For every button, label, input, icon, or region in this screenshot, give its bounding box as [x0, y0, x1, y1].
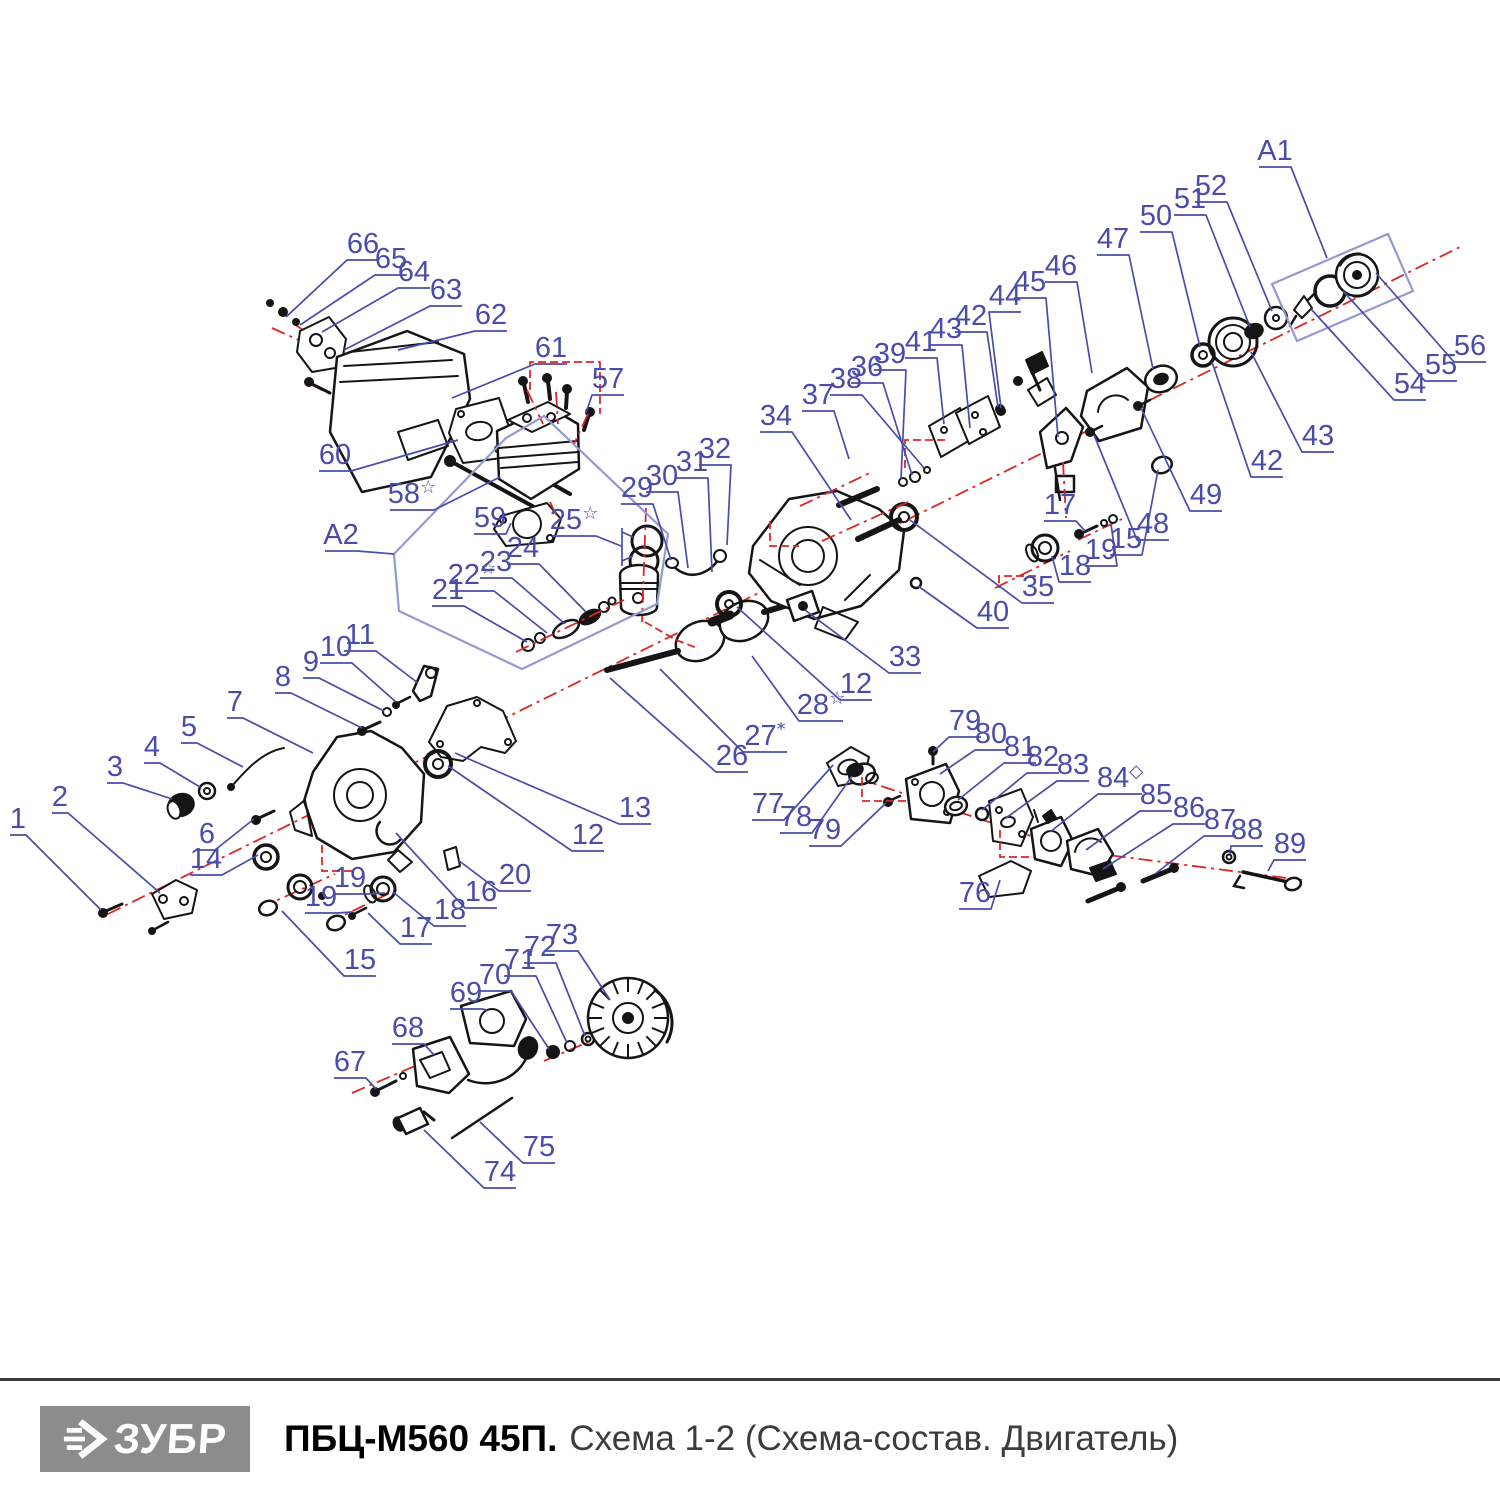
- leader-line-50: [1140, 232, 1200, 347]
- callout-17: 17: [1044, 489, 1076, 521]
- callout-42: 42: [1251, 445, 1283, 477]
- callout-40: 40: [977, 596, 1009, 628]
- leader-line-79: [933, 737, 981, 752]
- leader-line-1: [10, 835, 101, 910]
- leader-line-24: [507, 564, 586, 612]
- leader-line-69: [450, 1009, 487, 1010]
- callout-86: 86: [1173, 792, 1205, 824]
- callout-16: 16: [465, 876, 497, 908]
- callout-61: 61: [535, 332, 567, 364]
- callout-60: 60: [319, 439, 351, 471]
- callout-1: 1: [10, 803, 26, 835]
- callout-88: 88: [1231, 814, 1263, 846]
- callout-89: 89: [1274, 828, 1306, 860]
- zubr-logo: ЗУБР: [40, 1406, 250, 1472]
- callout-suffix-icon: ☆: [480, 558, 496, 579]
- callout-69: 69: [450, 977, 482, 1009]
- callout-17: 17: [400, 912, 432, 944]
- callout-63: 63: [430, 274, 462, 306]
- callout-62: 62: [475, 299, 507, 331]
- callout-2: 2: [52, 781, 68, 813]
- leader-line-9: [303, 678, 384, 711]
- callout-57: 57: [592, 363, 624, 395]
- callout-30: 30: [646, 460, 678, 492]
- leader-line-65: [300, 275, 407, 325]
- leader-line-11: [344, 651, 418, 683]
- callout-suffix-icon: ☆: [582, 503, 598, 524]
- callout-18: 18: [434, 894, 466, 926]
- leader-line-31: [676, 478, 712, 572]
- callout-74: 74: [484, 1156, 516, 1188]
- callout-33: 33: [889, 641, 921, 673]
- callout-34: 34: [760, 400, 792, 432]
- leader-line-37: [802, 411, 849, 459]
- callout-59: 59: [474, 502, 506, 534]
- callout-43: 43: [1302, 420, 1334, 452]
- leader-line-88: [1230, 846, 1263, 854]
- callout-27: 27*: [744, 719, 785, 752]
- callout-78: 78: [780, 801, 812, 833]
- callout-25: 25☆: [550, 503, 598, 536]
- leader-line-67: [334, 1078, 376, 1089]
- callout-58: 58☆: [388, 477, 436, 510]
- callout-suffix-icon: *: [777, 719, 786, 740]
- callout-19: 19: [305, 881, 337, 913]
- callout-8: 8: [275, 661, 291, 693]
- callout-18: 18: [1059, 550, 1091, 582]
- callout-75: 75: [523, 1131, 555, 1163]
- callout-12: 12: [572, 819, 604, 851]
- callout-4: 4: [144, 731, 160, 763]
- callout-9: 9: [303, 646, 319, 678]
- callout-47: 47: [1097, 223, 1129, 255]
- footer-divider: [0, 1378, 1500, 1381]
- callout-46: 46: [1045, 250, 1077, 282]
- callout-19: 19: [334, 862, 366, 894]
- callout-76: 76: [959, 877, 991, 909]
- zubr-arrow-icon: [62, 1416, 108, 1462]
- callout-80: 80: [975, 718, 1007, 750]
- leader-line-47: [1097, 255, 1153, 369]
- leader-line-10: [320, 663, 396, 702]
- callout-7: 7: [227, 686, 243, 718]
- callout-suffix-icon: ☆: [829, 688, 845, 709]
- leader-line-66: [286, 260, 379, 317]
- callout-83: 83: [1057, 749, 1089, 781]
- callout-52: 52: [1195, 170, 1227, 202]
- leader-line-89: [1268, 860, 1306, 871]
- leader-line-3: [107, 783, 172, 799]
- callout-45: 45: [1014, 266, 1046, 298]
- callout-A1: A1: [1257, 135, 1292, 167]
- callout-32: 32: [699, 433, 731, 465]
- callout-13: 13: [619, 792, 651, 824]
- callout-68: 68: [392, 1012, 424, 1044]
- callout-49: 49: [1190, 479, 1222, 511]
- leader-line-41: [905, 358, 944, 424]
- callout-35: 35: [1022, 571, 1054, 603]
- leader-line-8: [275, 693, 362, 728]
- leader-line-39: [874, 370, 906, 479]
- leader-line-5: [181, 743, 243, 767]
- callout-A2: A2: [323, 519, 358, 551]
- engine-parts: [99, 254, 1378, 1138]
- leader-line-A2: [325, 551, 394, 554]
- leader-line-21: [432, 606, 527, 642]
- callout-suffix-icon: ☆: [420, 477, 436, 498]
- leader-line-22: [450, 591, 547, 633]
- callout-14: 14: [190, 843, 222, 875]
- callout-11: 11: [345, 619, 375, 651]
- leader-line-4: [144, 763, 200, 787]
- leader-line-25: [552, 536, 621, 546]
- callout-26: 26: [716, 740, 748, 772]
- exploded-parts-diagram: 1234567891011141516171819192012136768697…: [0, 0, 1500, 1500]
- callout-85: 85: [1140, 779, 1172, 811]
- callout-3: 3: [107, 751, 123, 783]
- callout-54: 54: [1394, 368, 1426, 400]
- leader-line-38: [830, 395, 924, 468]
- callout-50: 50: [1140, 200, 1172, 232]
- callout-21: 21: [432, 574, 464, 606]
- schema-subtitle: Схема 1-2 (Схема-состав. Двигатель): [569, 1419, 1178, 1459]
- callout-67: 67: [334, 1046, 366, 1078]
- callout-5: 5: [181, 711, 197, 743]
- model-name: ПБЦ-М560 45П.: [284, 1418, 557, 1460]
- callouts: 1234567891011141516171819192012136768697…: [10, 135, 1486, 1188]
- callout-64: 64: [398, 256, 430, 288]
- brand-name: ЗУБР: [113, 1415, 229, 1463]
- callout-73: 73: [546, 919, 578, 951]
- callout-20: 20: [499, 859, 531, 891]
- diagram-title: ПБЦ-М560 45П. Схема 1-2 (Схема-состав. Д…: [284, 1406, 1178, 1472]
- callout-55: 55: [1425, 349, 1457, 381]
- leader-line-64: [322, 288, 430, 332]
- callout-39: 39: [874, 338, 906, 370]
- parts-diagram-page: 1234567891011141516171819192012136768697…: [0, 0, 1500, 1500]
- leader-line-A1: [1259, 167, 1327, 258]
- callout-42: 42: [955, 300, 987, 332]
- leader-line-7: [227, 718, 313, 753]
- leader-line-2: [52, 813, 160, 893]
- callout-28: 28☆: [797, 688, 845, 721]
- leader-line-44: [989, 312, 1021, 408]
- callout-56: 56: [1454, 330, 1486, 362]
- leader-line-23: [480, 578, 565, 624]
- callout-79: 79: [809, 814, 841, 846]
- callout-84: 84◇: [1097, 761, 1143, 794]
- callout-15: 15: [344, 944, 376, 976]
- callout-82: 82: [1027, 741, 1059, 773]
